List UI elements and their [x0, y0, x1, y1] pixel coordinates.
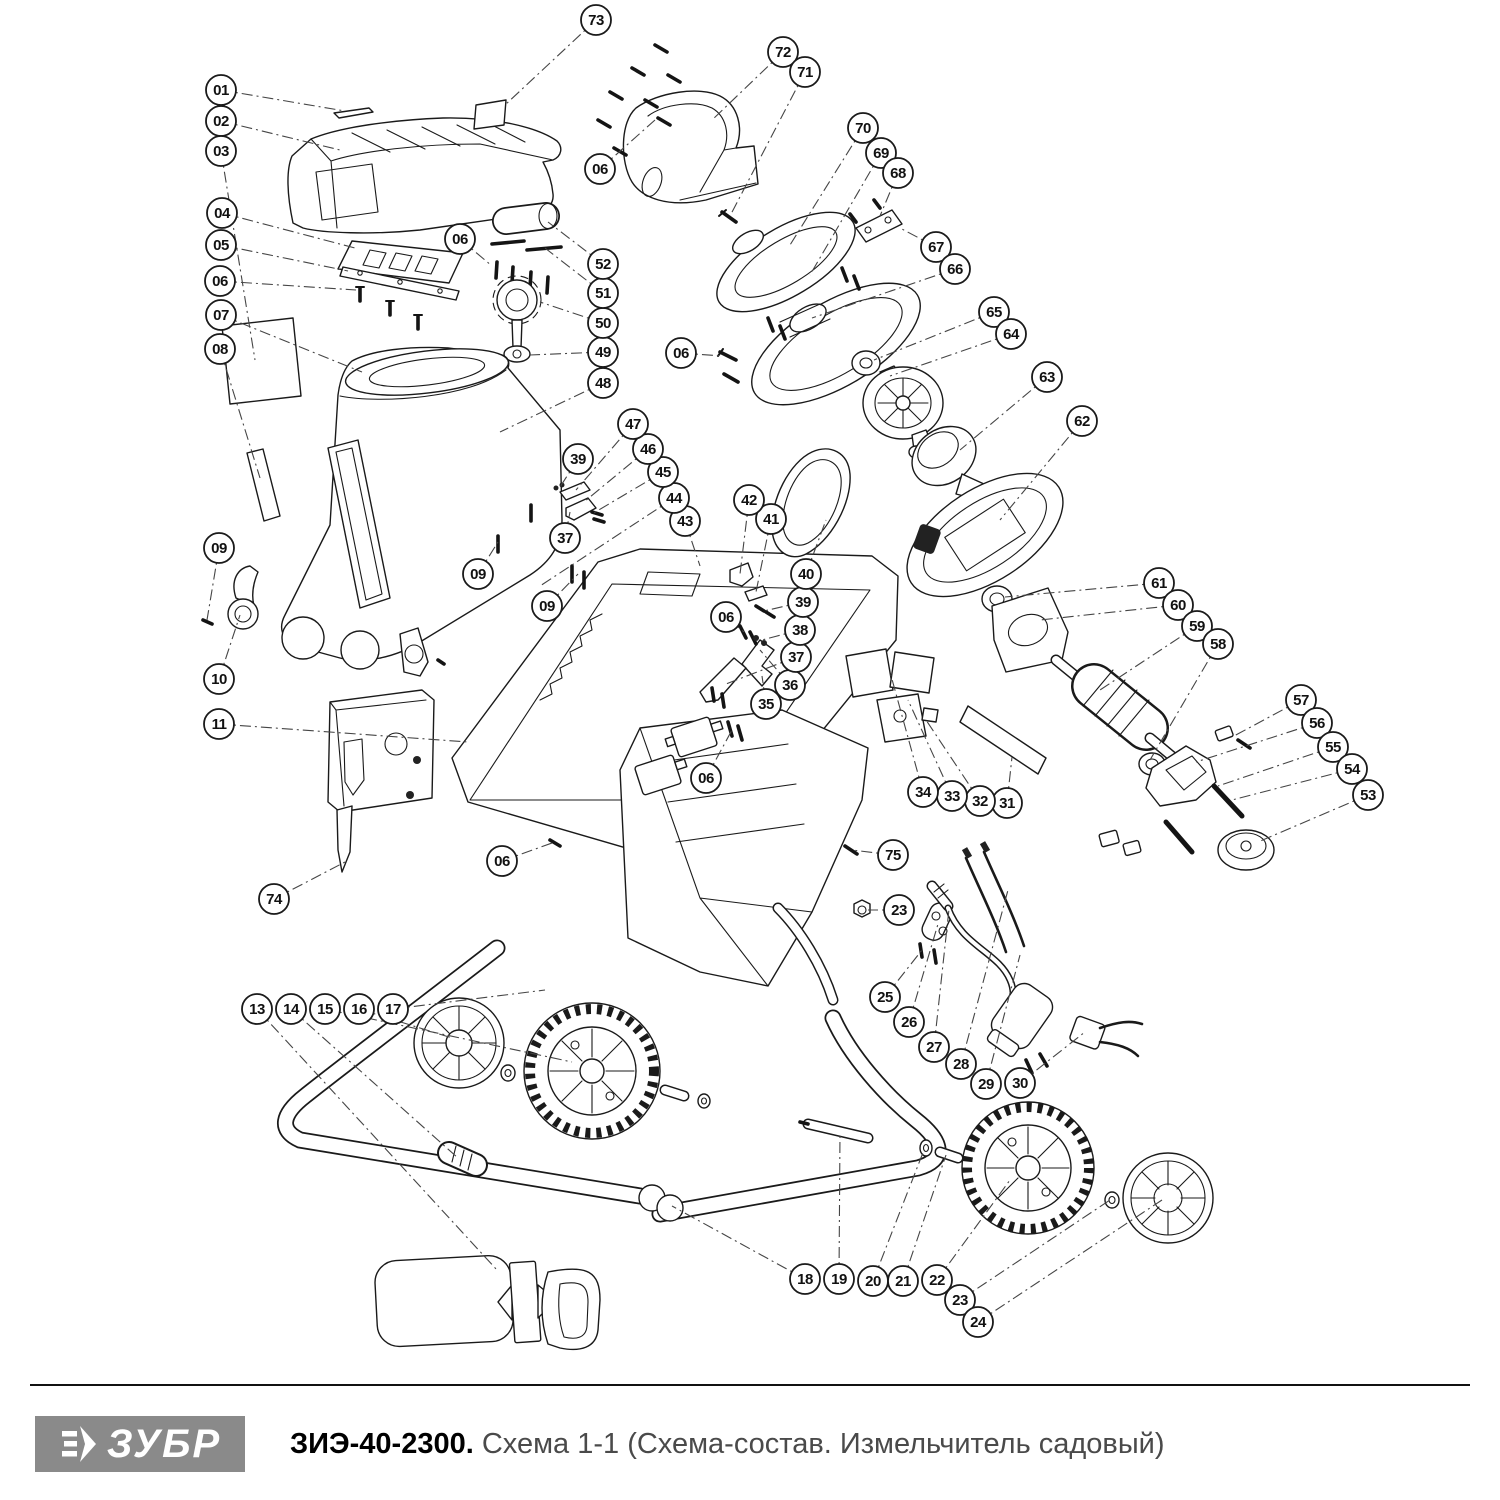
balloon-label-64: 64 [1003, 326, 1020, 343]
doc-title-model: ЗИЭ-40-2300. [290, 1428, 474, 1460]
balloon-label-08: 08 [212, 341, 228, 358]
balloon-label-47: 47 [625, 416, 641, 433]
sticker-part [334, 108, 373, 118]
balloon-label-34: 34 [915, 784, 932, 801]
balloon-label-23: 23 [952, 1292, 968, 1309]
balloon-label-06: 06 [718, 609, 734, 626]
balloon-label-16: 16 [351, 1001, 367, 1018]
balloon-label-36: 36 [782, 677, 798, 694]
leader-line-19 [839, 1132, 840, 1279]
balloon-label-35: 35 [758, 696, 774, 713]
balloon-label-20: 20 [865, 1273, 881, 1290]
balloon-label-13: 13 [249, 1001, 265, 1018]
balloon-label-39: 39 [795, 594, 811, 611]
balloon-label-40: 40 [798, 566, 814, 583]
balloon-label-66: 66 [947, 261, 963, 278]
balloon-label-06: 06 [698, 770, 714, 787]
leader-line-01 [221, 90, 345, 111]
cutter-disc-assembly-part [702, 193, 1039, 500]
balloon-label-61: 61 [1151, 575, 1167, 592]
balloon-label-32: 32 [972, 793, 988, 810]
sticker-part [474, 100, 506, 129]
balloon-label-41: 41 [763, 511, 779, 528]
belt-part [772, 449, 850, 557]
balloon-label-31: 31 [999, 795, 1015, 812]
doc-title: ЗИЭ-40-2300. Схема 1-1 (Схема-состав. Из… [290, 1428, 1165, 1461]
balloon-label-72: 72 [775, 44, 791, 61]
leader-line-18 [672, 1206, 805, 1279]
balloon-label-37: 37 [557, 530, 573, 547]
balloon-label-05: 05 [213, 237, 229, 254]
roller-part [506, 204, 557, 229]
hubcap-left-part [414, 998, 504, 1088]
balloon-label-75: 75 [885, 847, 901, 864]
balloon-label-24: 24 [970, 1314, 987, 1331]
balloon-label-09: 09 [539, 598, 555, 615]
footer-divider [30, 1384, 1470, 1386]
balloon-label-45: 45 [655, 464, 671, 481]
balloon-label-50: 50 [595, 315, 611, 332]
brand-logo: ЗУБР [35, 1416, 245, 1472]
balloon-label-43: 43 [677, 513, 693, 530]
balloon-label-06: 06 [452, 231, 468, 248]
leader-line-56 [1196, 723, 1317, 762]
balloon-label-74: 74 [266, 891, 283, 908]
leader-line-64 [890, 334, 1011, 376]
parts-diagram-page: 0102030405060708091011741314151617181920… [0, 0, 1500, 1500]
balloon-label-07: 07 [213, 307, 229, 324]
balloon-label-02: 02 [213, 113, 229, 130]
balloon-label-56: 56 [1309, 715, 1325, 732]
pusher-tool-part [374, 1255, 600, 1350]
balloon-label-01: 01 [213, 82, 229, 99]
doc-title-description: Схема 1-1 (Схема-состав. Измельчитель са… [474, 1428, 1165, 1460]
balloon-label-10: 10 [211, 671, 227, 688]
brush-holder-part [1099, 726, 1274, 870]
balloon-label-62: 62 [1074, 413, 1090, 430]
zubr-logo-icon [59, 1424, 101, 1464]
balloon-label-58: 58 [1210, 636, 1226, 653]
balloon-label-29: 29 [978, 1076, 994, 1093]
balloon-label-22: 22 [929, 1272, 945, 1289]
leader-line-73 [505, 20, 596, 105]
balloon-label-38: 38 [792, 622, 808, 639]
balloon-label-65: 65 [986, 304, 1002, 321]
balloon-label-53: 53 [1360, 787, 1376, 804]
exploded-view-area: 0102030405060708091011741314151617181920… [0, 0, 1500, 1385]
balloon-label-15: 15 [317, 1001, 333, 1018]
knob-assembly-part [492, 241, 561, 362]
balloon-label-37: 37 [788, 649, 804, 666]
balloon-label-71: 71 [797, 64, 813, 81]
balloon-label-03: 03 [213, 143, 229, 160]
stator-part [886, 448, 1084, 672]
side-panel-part [328, 690, 434, 872]
balloon-label-14: 14 [283, 1001, 300, 1018]
balloon-label-55: 55 [1325, 739, 1341, 756]
balloon-label-59: 59 [1189, 618, 1205, 635]
balloon-label-18: 18 [797, 1271, 813, 1288]
balloon-label-23: 23 [891, 902, 907, 919]
balloon-label-33: 33 [944, 788, 960, 805]
leader-line-05 [221, 245, 348, 271]
hubcap-right-part [1123, 1153, 1213, 1243]
balloon-label-06: 06 [673, 345, 689, 362]
balloon-label-19: 19 [831, 1271, 847, 1288]
balloon-label-70: 70 [855, 120, 871, 137]
lower-body-part [620, 710, 868, 1000]
leader-line-53 [1258, 795, 1368, 842]
wheel-right-part [962, 1102, 1094, 1234]
balloon-label-39: 39 [570, 451, 586, 468]
balloon-label-06: 06 [592, 161, 608, 178]
balloon-label-09: 09 [470, 566, 486, 583]
balloon-label-54: 54 [1344, 761, 1361, 778]
leader-line-06 [220, 281, 356, 290]
balloon-label-69: 69 [873, 145, 889, 162]
balloon-label-52: 52 [595, 256, 611, 273]
balloon-label-09: 09 [211, 540, 227, 557]
leader-line-58 [1150, 644, 1218, 760]
balloon-label-26: 26 [901, 1014, 917, 1031]
balloon-label-73: 73 [588, 12, 604, 29]
balloon-label-21: 21 [895, 1273, 911, 1290]
balloon-label-30: 30 [1012, 1075, 1028, 1092]
power-cord-part [919, 841, 1142, 1073]
balloon-label-57: 57 [1293, 692, 1309, 709]
balloon-label-04: 04 [214, 205, 231, 222]
balloon-label-63: 63 [1039, 369, 1055, 386]
balloon-label-67: 67 [928, 239, 944, 256]
balloon-label-42: 42 [741, 492, 757, 509]
leader-line-54 [1232, 769, 1352, 800]
balloon-label-46: 46 [640, 441, 656, 458]
balloon-label-17: 17 [385, 1001, 401, 1018]
upper-hopper-part [598, 45, 758, 222]
brand-logo-text: ЗУБР [107, 1424, 221, 1464]
balloon-label-28: 28 [953, 1056, 969, 1073]
balloon-label-25: 25 [877, 989, 893, 1006]
balloon-label-68: 68 [890, 165, 906, 182]
part-sketches [203, 45, 1274, 1349]
leader-line-61 [1005, 583, 1159, 597]
balloon-label-06: 06 [494, 853, 510, 870]
balloon-label-11: 11 [212, 716, 227, 733]
balloon-label-49: 49 [595, 344, 611, 361]
exploded-drawing: 0102030405060708091011741314151617181920… [0, 0, 1500, 1385]
balloon-label-60: 60 [1170, 597, 1186, 614]
balloon-label-27: 27 [926, 1039, 942, 1056]
wheel-left-part [524, 1003, 660, 1139]
balloon-label-06: 06 [212, 273, 228, 290]
balloon-label-44: 44 [666, 490, 683, 507]
sticker-part [247, 449, 280, 521]
leader-line-71 [730, 72, 805, 216]
balloon-label-48: 48 [595, 375, 611, 392]
leader-line-55 [1218, 747, 1333, 786]
blade-plate-part [338, 241, 463, 329]
feed-funnel-part [282, 341, 562, 669]
footer: ЗУБР ЗИЭ-40-2300. Схема 1-1 (Схема-соста… [35, 1416, 1165, 1472]
balloon-label-51: 51 [595, 285, 611, 302]
